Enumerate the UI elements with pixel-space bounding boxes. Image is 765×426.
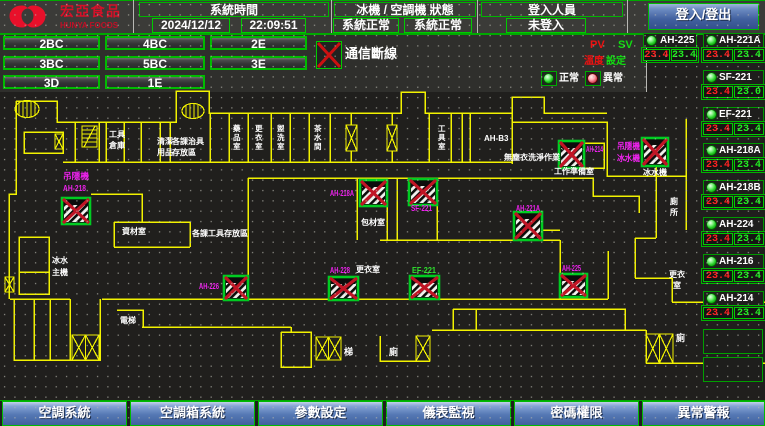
svg-text:冰水機: 冰水機 xyxy=(617,153,640,163)
svg-text:具: 具 xyxy=(438,133,446,142)
svg-text:AH-218: AH-218 xyxy=(63,183,86,193)
svg-text:廁: 廁 xyxy=(670,196,678,206)
svg-text:主機: 主機 xyxy=(52,267,68,277)
svg-text:品: 品 xyxy=(233,133,241,142)
svg-text:各課工具存放區: 各課工具存放區 xyxy=(191,228,248,238)
svg-text:冰水機: 冰水機 xyxy=(643,167,667,177)
svg-text:SF-221: SF-221 xyxy=(411,203,432,213)
svg-text:室: 室 xyxy=(673,280,681,290)
svg-text:包材室: 包材室 xyxy=(360,217,385,227)
svg-text:室: 室 xyxy=(438,141,446,151)
svg-text:吊隱機: 吊隱機 xyxy=(617,141,640,151)
svg-text:資材室: 資材室 xyxy=(122,226,146,236)
svg-text:清潔: 清潔 xyxy=(157,136,173,146)
svg-text:水: 水 xyxy=(314,132,322,142)
svg-text:冰水: 冰水 xyxy=(52,255,69,265)
svg-text:所: 所 xyxy=(669,207,678,217)
svg-text:洗: 洗 xyxy=(277,132,285,142)
svg-text:室: 室 xyxy=(277,141,285,151)
svg-text:廁: 廁 xyxy=(389,346,398,357)
svg-text:更: 更 xyxy=(255,124,263,133)
svg-text:各課治具: 各課治具 xyxy=(171,136,204,146)
svg-text:AH-218A: AH-218A xyxy=(330,188,354,198)
svg-text:衣: 衣 xyxy=(255,132,263,142)
svg-text:EF-221: EF-221 xyxy=(412,265,436,275)
svg-text:工: 工 xyxy=(438,124,446,133)
svg-text:AH-228: AH-228 xyxy=(330,265,350,275)
svg-text:存放區: 存放區 xyxy=(171,147,196,157)
svg-text:盥: 盥 xyxy=(277,123,285,133)
svg-text:AH-214: AH-214 xyxy=(586,145,603,154)
svg-text:用品: 用品 xyxy=(156,148,173,157)
svg-text:工具: 工具 xyxy=(109,130,125,139)
svg-text:吊隱機: 吊隱機 xyxy=(63,171,89,181)
svg-text:間: 間 xyxy=(314,142,322,151)
svg-text:梯: 梯 xyxy=(344,346,353,357)
svg-text:AH-B3: AH-B3 xyxy=(484,134,509,143)
svg-text:AH-226: AH-226 xyxy=(199,281,219,291)
svg-text:工作準備室: 工作準備室 xyxy=(554,166,594,176)
svg-text:廁: 廁 xyxy=(676,332,685,343)
svg-text:室: 室 xyxy=(255,141,263,151)
svg-text:更衣: 更衣 xyxy=(669,269,685,279)
svg-text:電梯: 電梯 xyxy=(120,315,136,325)
svg-text:更衣室: 更衣室 xyxy=(356,264,380,274)
svg-text:AH-225: AH-225 xyxy=(562,263,581,273)
svg-text:茶: 茶 xyxy=(313,123,322,133)
svg-text:倉庫: 倉庫 xyxy=(108,140,125,150)
svg-text:無塵衣洗淨作業: 無塵衣洗淨作業 xyxy=(504,152,561,162)
svg-text:室: 室 xyxy=(233,141,241,151)
svg-text:AH-221A: AH-221A xyxy=(516,203,540,213)
svg-text:藥: 藥 xyxy=(232,123,241,133)
